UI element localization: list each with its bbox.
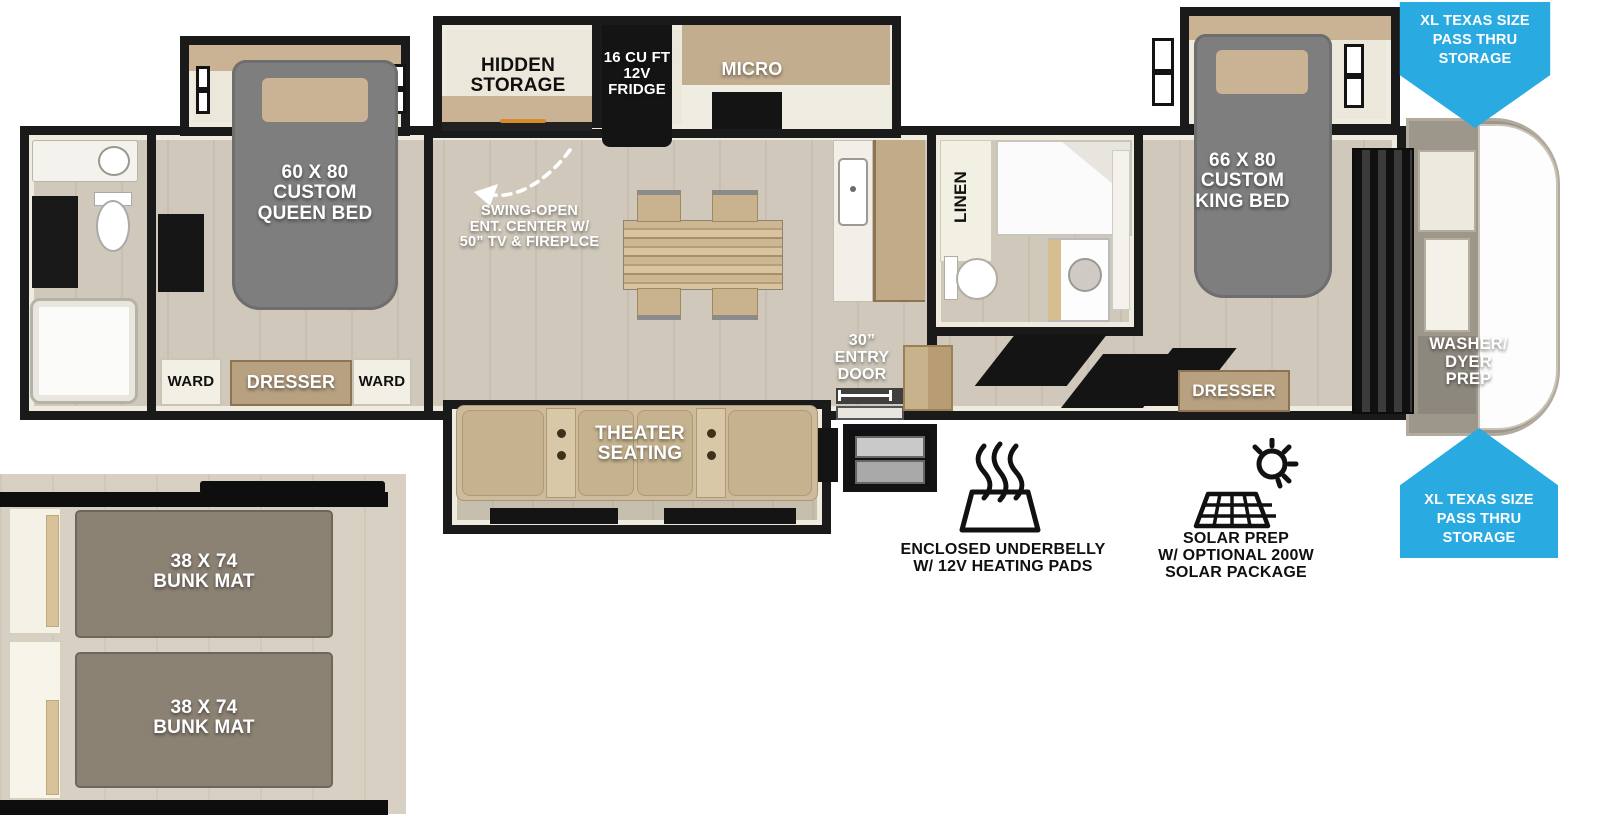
slide-window — [664, 508, 796, 524]
bunk-mat-label: 38 X 74 BUNK MAT — [96, 552, 312, 593]
slide-window — [490, 508, 618, 524]
solar-label: SOLAR PREP W/ OPTIONAL 200W SOLAR PACKAG… — [1128, 530, 1344, 581]
dresser-label: DRESSER — [1192, 382, 1276, 400]
vanity-side-panel — [1048, 240, 1061, 320]
step — [855, 460, 925, 484]
window — [1344, 44, 1364, 108]
faucet — [850, 186, 856, 192]
partition-wall — [424, 135, 433, 411]
bunk-wall — [0, 492, 388, 507]
entry-door-sill — [836, 406, 904, 420]
toilet — [96, 200, 130, 252]
wardrobe-closet — [32, 196, 78, 288]
cooktop — [712, 92, 782, 129]
fireplace-flame — [500, 119, 546, 123]
micro-label: MICRO — [692, 60, 812, 79]
toilet — [956, 258, 998, 300]
kitchen-sink — [838, 158, 868, 226]
bath-door — [1112, 150, 1130, 310]
ward-label: WARD — [359, 374, 406, 390]
pass-thru-label: XL TEXAS SIZE PASS THRU STORAGE — [1424, 491, 1534, 548]
vanity-sink — [1068, 258, 1102, 292]
dining-chair — [637, 190, 681, 222]
bunk-wall — [0, 800, 388, 815]
window — [196, 66, 210, 114]
bathtub — [30, 298, 138, 404]
bath-sink — [98, 146, 130, 176]
queen-bed-pillow — [262, 78, 368, 122]
hidden-storage-label: HIDDEN STORAGE — [448, 56, 588, 97]
fridge-label: 16 CU FT 12V FRIDGE — [598, 50, 676, 98]
pass-thru-label: XL TEXAS SIZE PASS THRU STORAGE — [1420, 12, 1530, 69]
ward-label: WARD — [168, 374, 215, 390]
entry-steps — [843, 424, 937, 492]
front-cap-cabinet — [1418, 150, 1476, 232]
dining-chair — [637, 288, 681, 320]
king-bed-pillow — [1216, 50, 1308, 94]
dresser-label: DRESSER — [247, 373, 335, 392]
entry-door-label: 30” ENTRY DOOR — [814, 332, 910, 383]
dresser: DRESSER — [1178, 370, 1290, 412]
pass-thru-arrow-up-icon: XL TEXAS SIZE PASS THRU STORAGE — [1400, 428, 1558, 558]
solar-prep-icon — [1192, 438, 1300, 532]
tall-pantry — [873, 140, 925, 302]
partition-wall — [147, 135, 156, 411]
dining-chair — [712, 288, 758, 320]
window — [1152, 38, 1174, 106]
seat-cushion — [462, 410, 544, 496]
wardrobe: WARD — [160, 358, 222, 406]
queen-bed-label: 60 X 80 CUSTOM QUEEN BED — [240, 163, 390, 224]
tv-cabinet — [158, 214, 204, 292]
step — [855, 436, 925, 458]
bunk-cabinet — [8, 640, 62, 800]
dresser: DRESSER — [230, 360, 352, 406]
fireplace-strip — [442, 122, 592, 131]
step-cabinet — [903, 345, 953, 411]
underbelly-label: ENCLOSED UNDERBELLY W/ 12V HEATING PADS — [878, 541, 1128, 575]
washer-dryer-label: WASHER/ DYER PREP — [1406, 336, 1531, 389]
king-bed-label: 66 X 80 CUSTOM KING BED — [1165, 151, 1320, 212]
wardrobe-slats — [1352, 148, 1414, 414]
bunk-vent — [200, 481, 385, 494]
rv-floorplan: 60 X 80 CUSTOM QUEEN BED WARD DRESSER WA… — [0, 0, 1600, 824]
dining-chair — [712, 190, 758, 222]
entry-door-dimension — [838, 390, 892, 401]
bunk-cabinet — [8, 507, 62, 635]
linen-label: LINEN — [946, 142, 976, 252]
underbelly-heat-icon — [950, 440, 1050, 536]
swing-open-arrow-icon — [468, 142, 578, 208]
seat-cushion — [728, 410, 812, 496]
wardrobe: WARD — [352, 358, 412, 406]
theater-seating-label: THEATER SEATING — [558, 424, 722, 465]
dining-table — [623, 220, 783, 290]
pass-thru-arrow-down-icon: XL TEXAS SIZE PASS THRU STORAGE — [1395, 2, 1555, 128]
bunk-mat-label: 38 X 74 BUNK MAT — [96, 698, 312, 739]
swing-open-note: SWING-OPEN ENT. CENTER W/ 50” TV & FIREP… — [452, 204, 607, 251]
front-cap-cabinet — [1424, 238, 1470, 332]
